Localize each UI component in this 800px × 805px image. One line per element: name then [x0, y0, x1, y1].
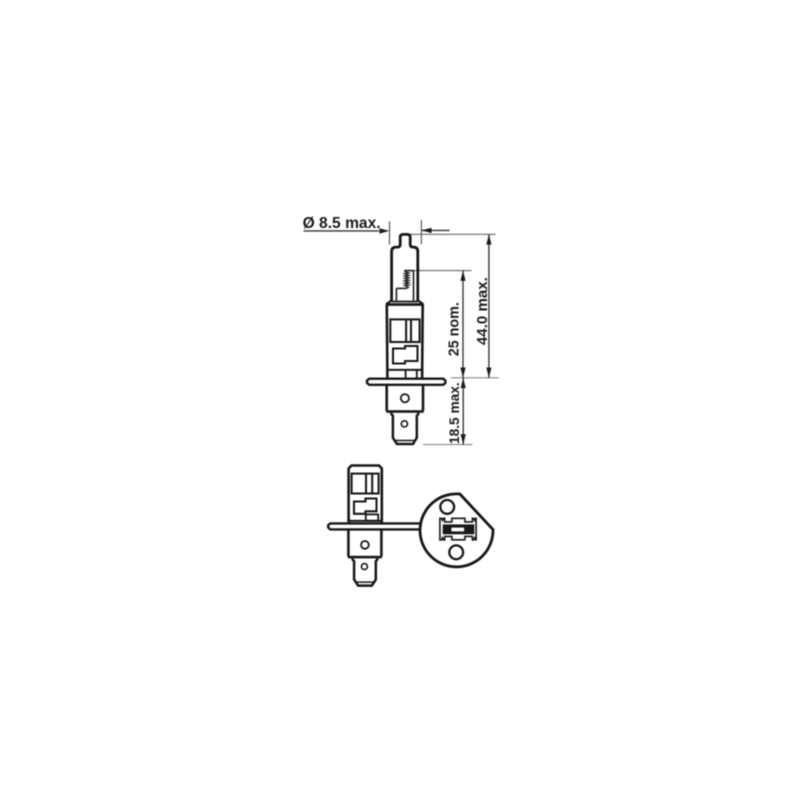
- svg-text:44.0 max.: 44.0 max.: [474, 277, 491, 345]
- svg-text:25 nom.: 25 nom.: [447, 302, 463, 356]
- svg-text:Ø 8.5 max.: Ø 8.5 max.: [303, 215, 381, 232]
- svg-text:18.5 max.: 18.5 max.: [447, 382, 462, 444]
